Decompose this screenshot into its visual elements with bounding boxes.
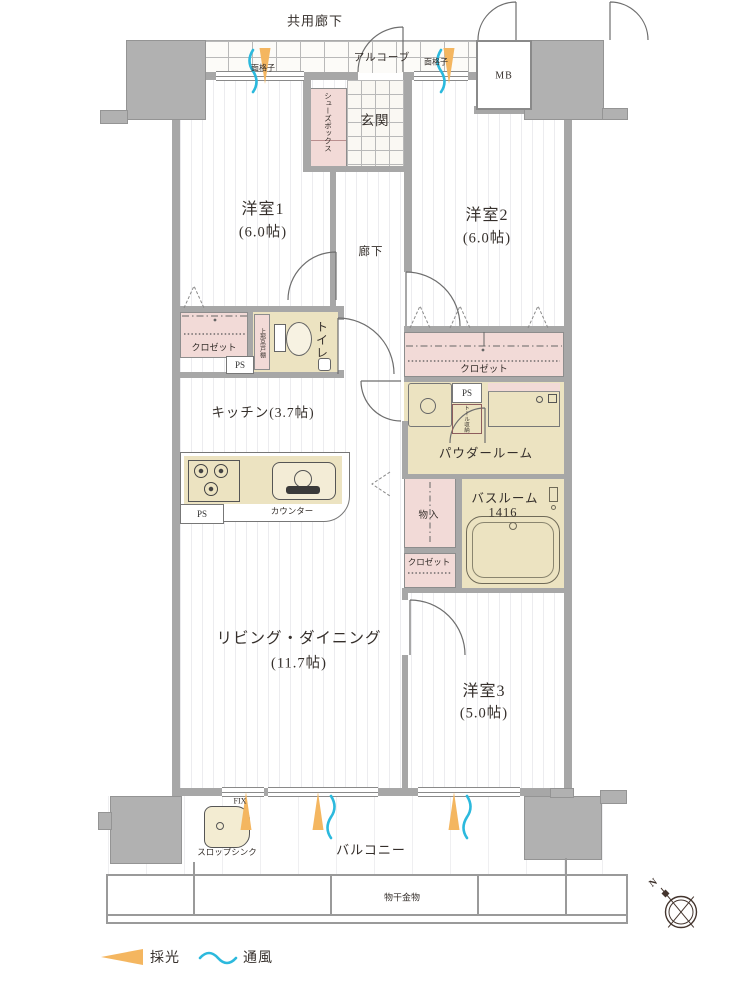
legend-daylight-label: 採光 [150,947,180,967]
counter-label: カウンター [271,505,314,517]
column [524,796,602,860]
wall [404,548,456,553]
wall [303,72,358,80]
closet1-label: クロゼット [191,341,236,354]
slop-sink-basin [204,806,250,848]
wall [172,72,180,796]
tall-storage-box [452,404,482,434]
wall [402,421,408,478]
wall [402,655,408,788]
wall [402,588,564,593]
toilet-label: トイレ [314,321,331,360]
shower-panel [549,487,558,502]
bedroom3-sliding-window [418,787,520,797]
column [524,40,604,120]
balcony-railing [106,922,628,924]
stove-burner [214,464,228,478]
wall [404,326,564,332]
washbasin-bowl [420,398,436,414]
column [126,40,206,120]
bathtub-inner [472,522,554,578]
kitchen-label: キッチン(3.7帖) [211,401,314,421]
floor-plan: N 共用廊下 アルコーブ 面格子 面格子 MB 玄関 シューズボックス 洋室1 … [0,0,730,1000]
wall [180,372,344,378]
bathroom-label: バスルーム [471,488,538,507]
column [600,790,627,804]
ps3-label: PS [197,509,207,519]
living-label: リビング・ダイニング [216,626,381,648]
balcony-railing [106,914,628,916]
column [110,796,182,864]
laundry-drain [548,394,557,403]
grille-right-label: 面格子 [424,57,448,68]
column [100,110,128,124]
column [550,788,574,798]
wall [404,377,564,382]
ps1-label: PS [235,360,245,370]
bedroom2-label: 洋室2 [465,201,508,225]
closet3-label: クロゼット [408,556,451,568]
fix-window-label: FIX [234,797,247,806]
genkan-label: 玄関 [361,109,390,129]
wall [303,166,404,172]
balcony-end-post [626,874,628,924]
grille-left-label: 面格子 [251,63,275,74]
laundry-upper-cabinet [488,383,560,392]
bedroom1-size-label: (6.0帖) [239,221,287,242]
balcony-end-post [106,874,108,924]
ps-box-2: PS [452,383,482,403]
hallway-label: 廊下 [359,243,384,259]
wall [338,306,344,320]
bedroom1-label: 洋室1 [241,195,284,219]
wall [172,788,222,796]
living-sliding-window [268,787,378,797]
closet2-label: クロゼット [460,361,508,375]
wall [180,306,344,312]
wall [303,80,311,172]
compass-north-label: N [647,876,660,890]
bathtub-faucet [509,522,517,530]
living-size-label: (11.7帖) [271,652,327,673]
toilet-bowl [286,322,312,356]
bedroom3-size-label: (5.0帖) [460,702,508,723]
legend-ventilation-label: 通風 [243,947,273,967]
ps-box-3: PS [180,504,224,524]
window-grille-right [414,71,468,81]
ps-box-1: PS [226,356,254,374]
alcove-label: アルコーブ [354,50,411,65]
laundry-hanger-bracket [477,876,479,916]
stove-burner [204,482,218,496]
bathroom-size-label: 1416 [489,506,518,521]
laundry-hanger-label: 物干金物 [384,891,420,904]
wall [564,72,572,796]
wall [456,478,462,593]
shoe-box-label: シューズボックス [323,92,334,152]
toilet-tank [274,324,286,352]
laundry-faucet [536,396,543,403]
common-corridor-label: 共用廊下 [287,11,343,30]
powder-room-label: パウダールーム [439,443,533,462]
shower-head [551,505,556,510]
balcony-label: バルコニー [336,840,406,859]
column [602,108,628,120]
sink-rack [286,486,320,494]
ps2-label: PS [462,388,472,398]
wall [402,474,564,479]
wall [402,593,408,600]
laundry-hanger-bracket [330,876,332,916]
stove-burner [194,464,208,478]
balcony-slab-edge [106,874,628,876]
balcony-support [193,862,195,916]
wall [404,80,412,272]
upper-cabinet-label: 上部吊戸棚 [258,328,267,358]
wall [330,172,336,306]
fix-window [222,787,264,797]
bedroom2-size-label: (6.0帖) [463,227,511,248]
slop-sink-label: スロップシンク [197,846,257,858]
wall [376,788,420,796]
compass-icon: N [647,876,696,928]
meter-box-label: MB [495,71,513,82]
column [98,812,112,830]
bedroom3-label: 洋室3 [462,677,505,701]
balcony-support [565,858,567,916]
toilet-hand-basin [318,358,331,371]
monoire-label: 物入 [418,507,439,521]
slop-sink-drain [216,822,224,830]
